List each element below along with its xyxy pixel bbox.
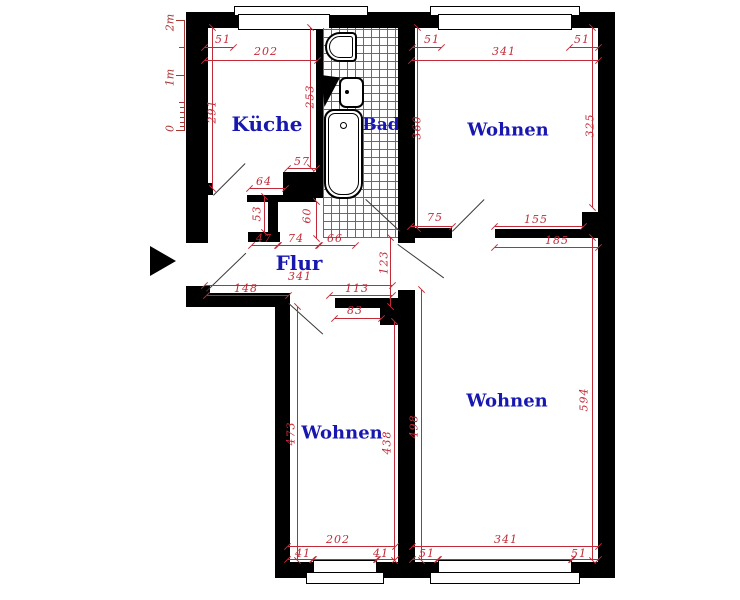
ruler-tick: [180, 122, 185, 123]
dimension-label: 53: [251, 196, 264, 232]
ruler-label-2m: 2m: [164, 11, 177, 35]
dimension-line: [319, 245, 355, 246]
dimension-line: [205, 47, 233, 48]
dimension-label: 51: [571, 547, 587, 560]
dimension-label: 185: [545, 234, 569, 247]
ruler-tick: [176, 20, 185, 21]
bathtub-drain: [340, 122, 347, 129]
dimension-label: 341: [288, 270, 312, 283]
dimension-line: [438, 559, 572, 560]
ruler-tick: [180, 107, 185, 108]
dimension-label: 47: [256, 232, 272, 245]
dimension-line: [570, 47, 598, 48]
ruler-tick: [180, 117, 185, 118]
dimension-label: 74: [288, 232, 304, 245]
ruler-tick: [180, 126, 185, 127]
dimension-label: 64: [256, 175, 272, 188]
dimension-label: 498: [408, 409, 421, 445]
dimension-line: [278, 245, 319, 246]
dimension-line: [313, 559, 377, 560]
dimension-label: 473: [285, 416, 298, 452]
window-kueche: [238, 14, 330, 30]
window-wohnen-top: [438, 14, 572, 30]
room-label-wohnen-br: Wohnen: [466, 391, 547, 412]
window-sill-wohnen-br: [430, 572, 580, 584]
sink-drain: [345, 90, 349, 94]
dimension-label: 325: [584, 108, 597, 144]
ruler-label-0: 0: [164, 117, 177, 141]
dimension-line: [394, 322, 395, 560]
entrance-arrow-icon: [150, 246, 176, 276]
door-swing-wohnen-top: [452, 199, 485, 232]
wall-kueche-bad: [316, 28, 323, 198]
ruler-tick: [176, 130, 185, 131]
dimension-line: [250, 188, 285, 189]
dimension-line: [495, 247, 598, 248]
dimension-line: [316, 202, 317, 238]
wall-75: [405, 228, 452, 238]
dimension-label: 51: [574, 33, 590, 46]
dimension-line: [592, 238, 593, 560]
dimension-label: 123: [378, 245, 391, 281]
ruler-tick: [180, 112, 185, 113]
door-swing-wohnen-bl: [288, 303, 323, 335]
dimension-label: 83: [347, 304, 363, 317]
dimension-label: 438: [381, 425, 394, 461]
dimension-label: 51: [419, 547, 435, 560]
dimension-label: 51: [424, 33, 440, 46]
dimension-line: [412, 60, 598, 61]
wall-niche-vertical: [268, 202, 278, 232]
dimension-line: [495, 226, 583, 227]
floor-plan: 2m 1m 0: [0, 0, 740, 600]
dimension-label: 41: [295, 547, 311, 560]
dimension-label: 360: [411, 110, 424, 146]
dimension-label: 51: [215, 33, 231, 46]
entrance-jamb-top: [186, 242, 208, 243]
wall-right: [598, 12, 615, 578]
dimension-label: 202: [254, 45, 278, 58]
dimension-label: 41: [373, 547, 389, 560]
dimension-label: 341: [494, 533, 518, 546]
dimension-label: 202: [326, 533, 350, 546]
toilet: [325, 32, 357, 62]
door-swing-kueche: [213, 163, 246, 196]
dimension-label: 60: [301, 198, 314, 234]
entrance-jamb-bottom: [186, 286, 208, 287]
dimension-label: 155: [524, 213, 548, 226]
toilet-bowl: [329, 36, 353, 58]
dimension-line: [421, 290, 422, 560]
ruler-label-1m: 1m: [164, 66, 177, 90]
dimension-label: 148: [234, 282, 258, 295]
dimension-line: [330, 295, 392, 296]
ruler-tick: [179, 102, 185, 103]
dimension-label: 594: [578, 382, 591, 418]
dimension-line: [207, 295, 288, 296]
dimension-label: 66: [327, 232, 343, 245]
room-label-bad: Bad: [362, 115, 399, 135]
room-label-kueche: Küche: [232, 112, 303, 136]
door-swing-wohnen-br: [397, 244, 444, 278]
dimension-label: 341: [492, 45, 516, 58]
dimension-line: [252, 245, 278, 246]
wall-block-57: [283, 172, 316, 195]
ruler-tick: [179, 47, 185, 48]
room-label-wohnen-bl: Wohnen: [301, 423, 382, 444]
window-sill-wohnen-bl: [306, 572, 384, 584]
ruler-tick: [176, 75, 185, 76]
dimension-line: [264, 197, 265, 232]
dimension-label: 253: [304, 79, 317, 115]
dimension-line: [205, 60, 317, 61]
room-label-wohnen-top: Wohnen: [467, 120, 548, 141]
wall-pier: [582, 212, 598, 229]
dimension-label: 113: [345, 282, 369, 295]
dimension-label: 75: [427, 211, 443, 224]
dimension-label: 291: [206, 94, 219, 130]
sink: [339, 77, 364, 108]
dimension-line: [335, 318, 381, 319]
dimension-label: 57: [294, 155, 310, 168]
